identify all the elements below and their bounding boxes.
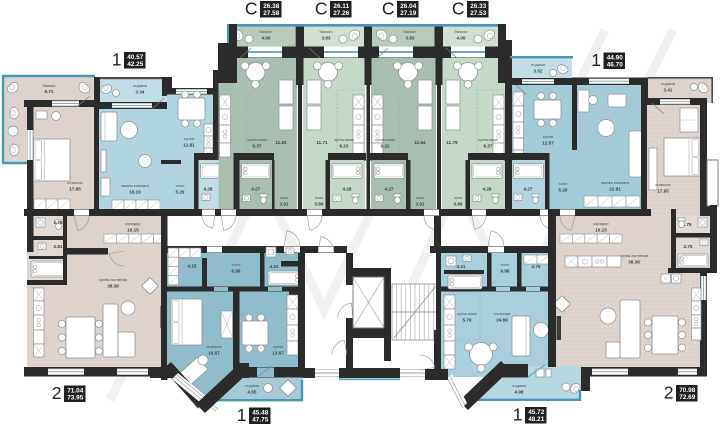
svg-text:кухня: кухня	[184, 136, 194, 141]
svg-text:C: C	[452, 0, 465, 19]
svg-text:холл: холл	[232, 262, 241, 267]
svg-text:3.89: 3.89	[454, 202, 463, 207]
svg-text:11.64: 11.64	[414, 140, 426, 145]
svg-text:71.04: 71.04	[67, 387, 83, 394]
svg-text:спальня: спальня	[206, 344, 221, 349]
svg-text:балкон: балкон	[43, 83, 56, 88]
svg-text:72.69: 72.69	[679, 394, 695, 401]
svg-text:C: C	[382, 0, 395, 19]
svg-text:3.89: 3.89	[315, 202, 324, 207]
svg-text:2.81: 2.81	[54, 244, 63, 249]
svg-text:73.95: 73.95	[67, 395, 83, 402]
svg-text:кухня-гостиная: кухня-гостиная	[99, 277, 127, 282]
svg-text:9.71: 9.71	[45, 89, 54, 94]
svg-text:4.21: 4.21	[457, 264, 466, 269]
svg-text:2: 2	[664, 383, 674, 403]
svg-text:3.83: 3.83	[406, 36, 415, 41]
svg-text:4.27: 4.27	[385, 187, 394, 192]
svg-text:лоджия: лоджия	[661, 81, 675, 86]
svg-text:3.52: 3.52	[534, 69, 543, 74]
svg-text:жилая комната: жилая комната	[601, 180, 630, 185]
svg-text:38.38: 38.38	[628, 260, 640, 265]
svg-text:3.41: 3.41	[664, 88, 673, 93]
svg-text:4.00: 4.00	[457, 36, 466, 41]
svg-text:балкон: балкон	[260, 29, 273, 34]
svg-text:26.04: 26.04	[400, 3, 416, 10]
svg-text:3.34: 3.34	[136, 90, 145, 95]
svg-text:4.27: 4.27	[524, 187, 533, 192]
svg-text:40.57: 40.57	[127, 54, 143, 61]
svg-text:6.22: 6.22	[381, 144, 390, 149]
svg-text:кухня-ниша: кухня-ниша	[375, 138, 394, 142]
svg-text:4.00: 4.00	[262, 36, 271, 41]
svg-text:коридор: коридор	[125, 221, 141, 226]
svg-text:лоджия: лоджия	[512, 383, 526, 388]
svg-text:4.75: 4.75	[532, 264, 541, 269]
svg-text:4.55: 4.55	[248, 390, 257, 395]
svg-text:C: C	[245, 0, 258, 19]
svg-text:16.57: 16.57	[208, 351, 220, 356]
svg-text:42.25: 42.25	[127, 61, 143, 68]
svg-text:27.19: 27.19	[400, 10, 416, 17]
svg-text:17.95: 17.95	[69, 187, 81, 192]
svg-text:4.15: 4.15	[188, 264, 197, 269]
svg-text:5.29: 5.29	[176, 190, 185, 195]
svg-text:холл: холл	[416, 196, 424, 200]
svg-text:жилая комната: жилая комната	[121, 183, 150, 188]
svg-text:1: 1	[237, 405, 247, 425]
svg-text:холл: холл	[454, 196, 462, 200]
svg-text:5.79: 5.79	[463, 318, 472, 323]
svg-text:45.48: 45.48	[252, 409, 268, 416]
svg-text:1.75: 1.75	[54, 220, 63, 225]
svg-text:балкон: балкон	[455, 29, 468, 34]
svg-text:38.38: 38.38	[107, 284, 119, 289]
svg-text:6.37: 6.37	[253, 144, 262, 149]
svg-text:лоджия: лоджия	[531, 62, 545, 67]
svg-text:кухня-гостиная: кухня-гостиная	[620, 253, 648, 258]
svg-text:22.81: 22.81	[609, 187, 621, 192]
svg-text:лоджия: лоджия	[245, 383, 259, 388]
svg-text:17.95: 17.95	[657, 189, 669, 194]
svg-text:5.29: 5.29	[559, 188, 568, 193]
svg-text:10.15: 10.15	[595, 228, 607, 233]
svg-text:коридор: коридор	[593, 221, 609, 226]
svg-text:4.28: 4.28	[204, 187, 213, 192]
svg-text:47.75: 47.75	[252, 417, 268, 424]
svg-text:11.83: 11.83	[275, 140, 287, 145]
svg-text:холл: холл	[559, 181, 568, 186]
svg-text:70.98: 70.98	[679, 387, 695, 394]
svg-text:27.26: 27.26	[333, 10, 349, 17]
svg-text:24.69: 24.69	[496, 318, 508, 323]
svg-text:балкон: балкон	[404, 29, 417, 34]
svg-text:18.19: 18.19	[129, 190, 141, 195]
svg-text:холл: холл	[280, 196, 288, 200]
svg-text:10.15: 10.15	[127, 228, 139, 233]
svg-text:кухня: кухня	[273, 344, 283, 349]
svg-text:лоджия: лоджия	[133, 83, 147, 88]
svg-text:C: C	[315, 0, 328, 19]
svg-text:холл: холл	[501, 262, 510, 267]
svg-text:кухня-ниша: кухня-ниша	[247, 138, 266, 142]
svg-text:спальня: спальня	[655, 182, 670, 187]
svg-text:2: 2	[52, 383, 62, 403]
svg-text:27.58: 27.58	[263, 10, 279, 17]
svg-text:13.67: 13.67	[272, 351, 284, 356]
svg-text:балкон: балкон	[320, 29, 333, 34]
svg-text:6.37: 6.37	[484, 144, 493, 149]
svg-text:3.91: 3.91	[280, 202, 289, 207]
svg-text:3.83: 3.83	[322, 36, 331, 41]
svg-text:26.38: 26.38	[263, 3, 279, 10]
svg-text:кухня: кухня	[543, 134, 553, 139]
svg-text:холл: холл	[176, 183, 185, 188]
svg-text:12.57: 12.57	[542, 141, 554, 146]
svg-text:кухня-ниша: кухня-ниша	[457, 312, 476, 316]
svg-text:6.23: 6.23	[340, 144, 349, 149]
svg-text:4.28: 4.28	[483, 187, 492, 192]
svg-text:спальня: спальня	[67, 180, 82, 185]
svg-text:48.21: 48.21	[528, 416, 544, 423]
svg-text:45.72: 45.72	[528, 409, 544, 416]
svg-text:12.81: 12.81	[183, 143, 195, 148]
svg-text:11.79: 11.79	[446, 140, 458, 145]
svg-text:4.98: 4.98	[515, 390, 524, 395]
svg-text:4.28: 4.28	[343, 187, 352, 192]
svg-text:44.90: 44.90	[607, 54, 623, 61]
svg-text:холл: холл	[315, 196, 323, 200]
svg-text:кухня-ниша: кухня-ниша	[478, 138, 497, 142]
svg-text:26.33: 26.33	[470, 3, 486, 10]
svg-text:46.70: 46.70	[607, 62, 623, 69]
svg-text:3.91: 3.91	[416, 202, 425, 207]
svg-text:1: 1	[513, 405, 523, 425]
svg-text:2.75: 2.75	[684, 244, 693, 249]
svg-text:26.11: 26.11	[333, 3, 349, 10]
svg-text:6.88: 6.88	[232, 269, 241, 274]
svg-text:11.71: 11.71	[316, 140, 328, 145]
svg-text:кухня-ниша: кухня-ниша	[334, 138, 353, 142]
svg-text:гостиная: гостиная	[494, 311, 510, 316]
svg-text:1: 1	[112, 50, 122, 70]
svg-text:1: 1	[591, 50, 601, 70]
svg-text:27.53: 27.53	[470, 10, 486, 17]
svg-text:4.27: 4.27	[251, 187, 260, 192]
svg-text:4.21: 4.21	[270, 264, 279, 269]
svg-text:6.88: 6.88	[501, 269, 510, 274]
